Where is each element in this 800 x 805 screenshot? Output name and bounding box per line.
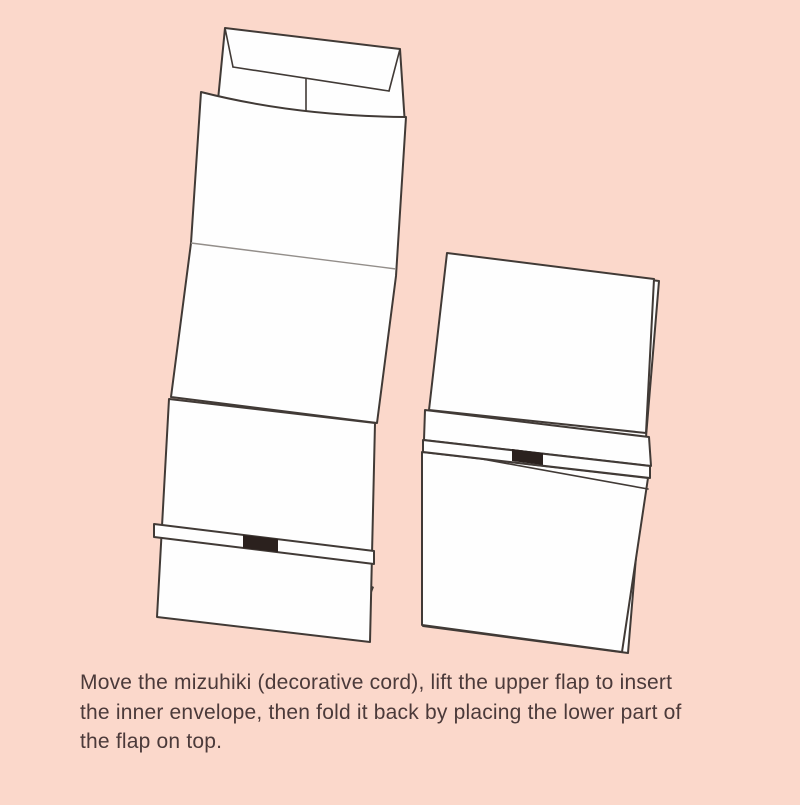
caption-line-3: the flap on top. (80, 727, 682, 757)
wrapper-front (171, 92, 406, 423)
wrapper-lower-flap (157, 399, 375, 642)
left-envelope-figure (154, 28, 406, 642)
folded-upper-flap (429, 253, 654, 433)
caption-line-2: the inner envelope, then fold it back by… (80, 698, 682, 728)
caption-line-1: Move the mizuhiki (decorative cord), lif… (80, 668, 682, 698)
caption: Move the mizuhiki (decorative cord), lif… (80, 668, 682, 757)
right-envelope-figure (422, 253, 659, 653)
lower-front (422, 452, 648, 652)
